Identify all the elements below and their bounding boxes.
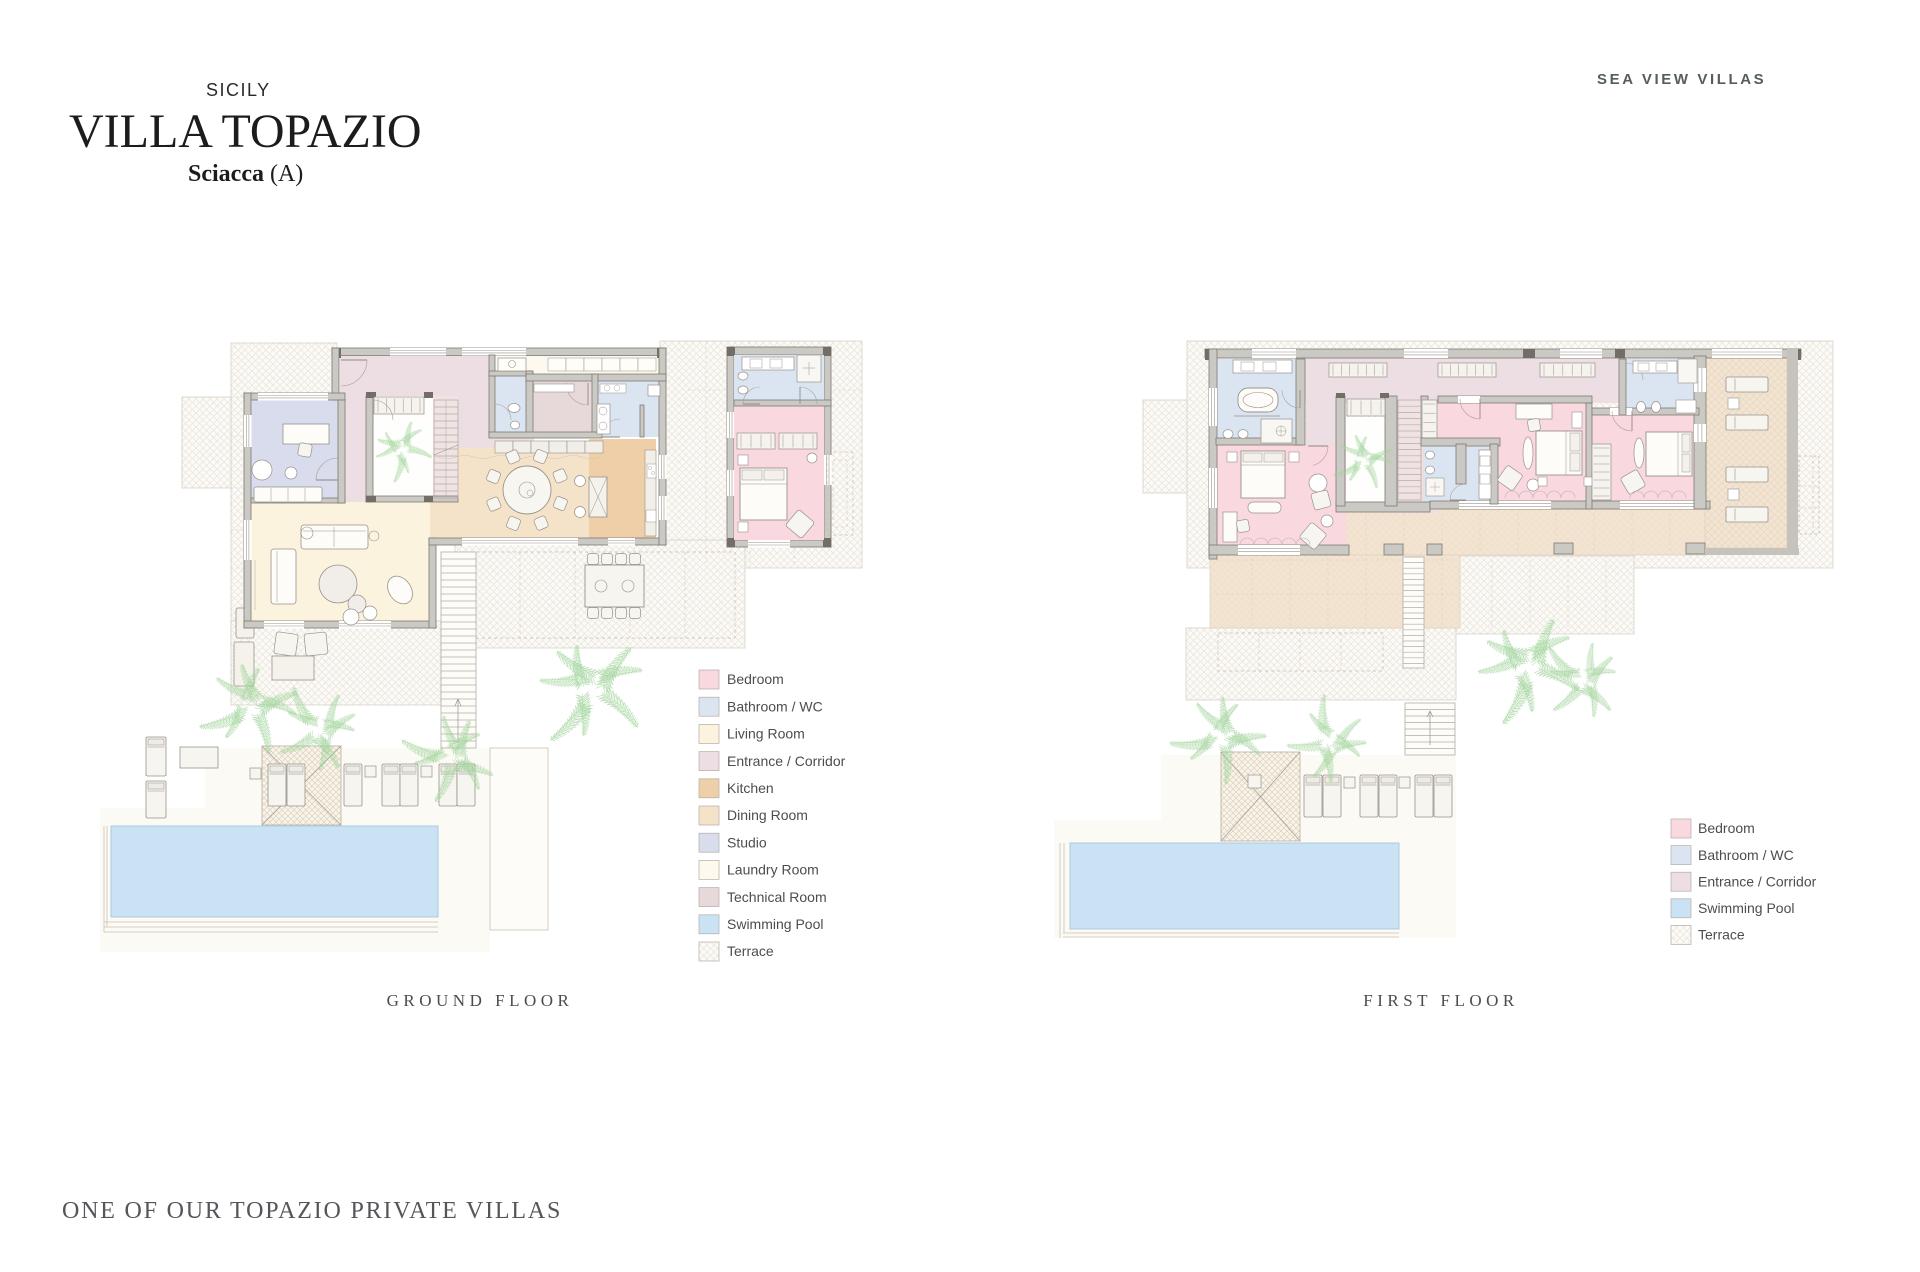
svg-text:Laundry Room: Laundry Room [727,862,819,878]
svg-text:Entrance / Corridor: Entrance / Corridor [727,753,846,769]
svg-text:Studio: Studio [727,834,767,850]
svg-text:Entrance / Corridor: Entrance / Corridor [1698,873,1817,889]
svg-text:Bathroom / WC: Bathroom / WC [1698,847,1794,863]
svg-text:Bedroom: Bedroom [1698,820,1755,836]
svg-text:Terrace: Terrace [727,943,774,959]
svg-text:Living Room: Living Room [727,726,805,742]
svg-text:Terrace: Terrace [1698,927,1745,943]
svg-text:Bedroom: Bedroom [727,671,784,687]
svg-text:Swimming Pool: Swimming Pool [727,916,823,932]
svg-text:Technical Room: Technical Room [727,889,827,905]
svg-text:Swimming Pool: Swimming Pool [1698,900,1794,916]
svg-text:Dining Room: Dining Room [727,807,808,823]
svg-text:Bathroom / WC: Bathroom / WC [727,698,823,714]
svg-text:Kitchen: Kitchen [727,780,774,796]
